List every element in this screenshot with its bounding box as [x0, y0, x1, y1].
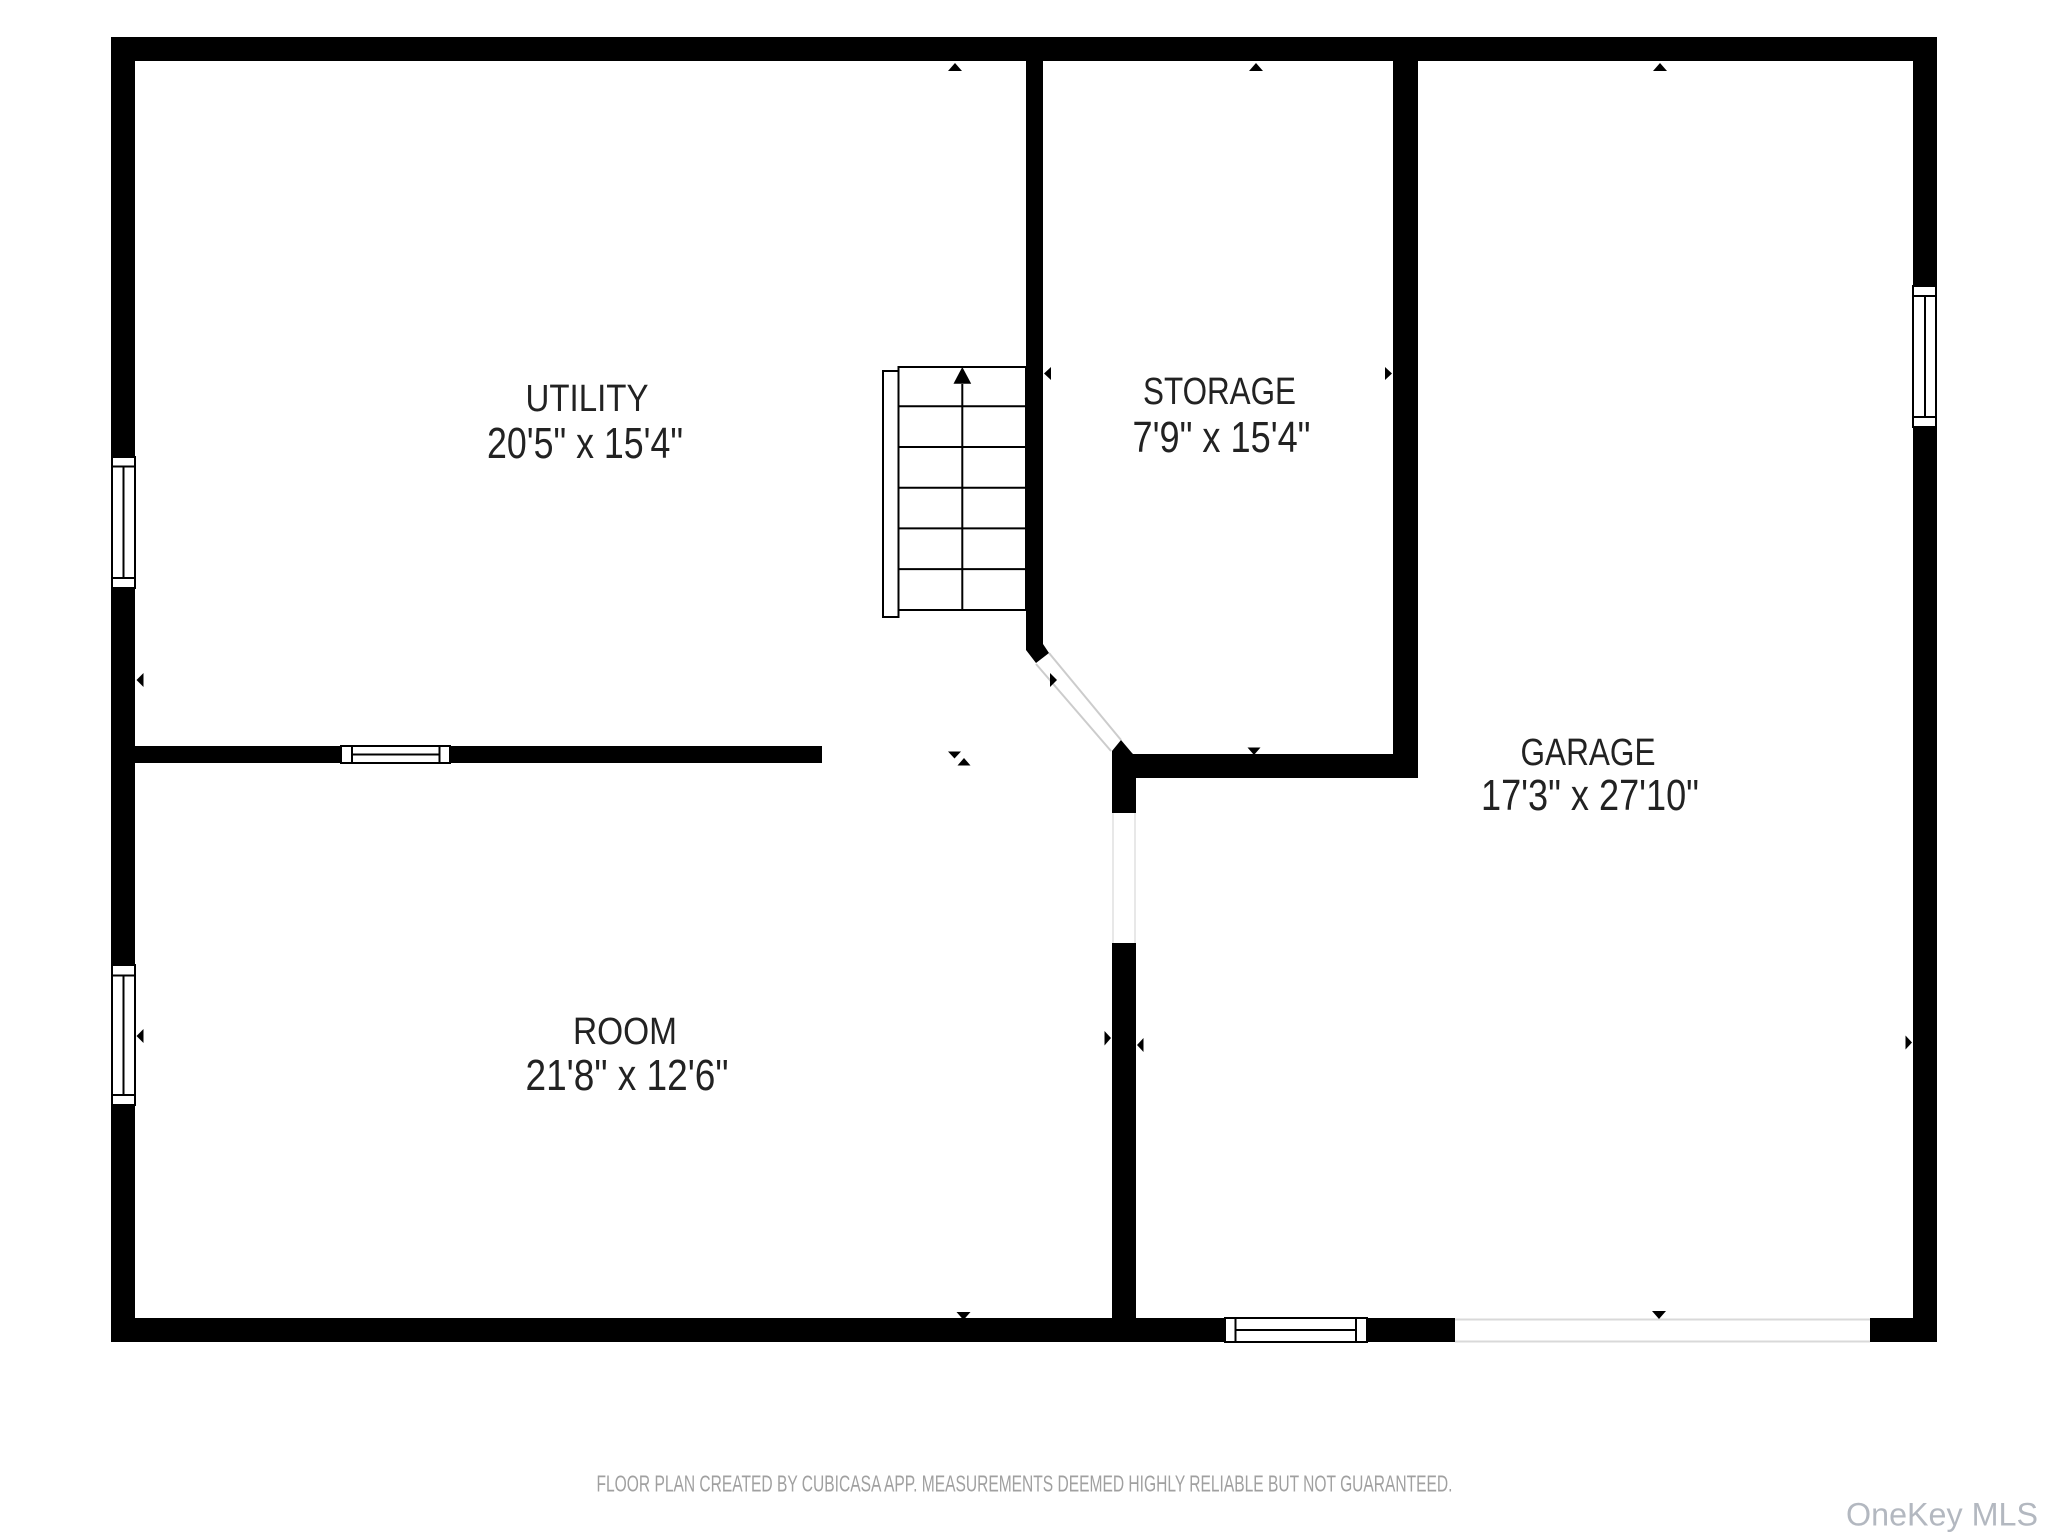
svg-text:UTILITY: UTILITY [526, 378, 649, 420]
svg-text:STORAGE: STORAGE [1143, 371, 1296, 413]
svg-text:GARAGE: GARAGE [1521, 732, 1656, 774]
svg-text:FLOOR PLAN CREATED BY CUBICASA: FLOOR PLAN CREATED BY CUBICASA APP. MEAS… [597, 1471, 1453, 1497]
svg-text:OneKey MLS: OneKey MLS [1846, 1497, 2038, 1533]
svg-text:7'9" x 15'4": 7'9" x 15'4" [1133, 413, 1311, 462]
svg-text:20'5" x 15'4": 20'5" x 15'4" [487, 419, 683, 468]
svg-text:ROOM: ROOM [573, 1011, 677, 1053]
svg-text:17'3" x 27'10": 17'3" x 27'10" [1481, 771, 1699, 820]
svg-text:21'8" x 12'6": 21'8" x 12'6" [526, 1051, 729, 1100]
